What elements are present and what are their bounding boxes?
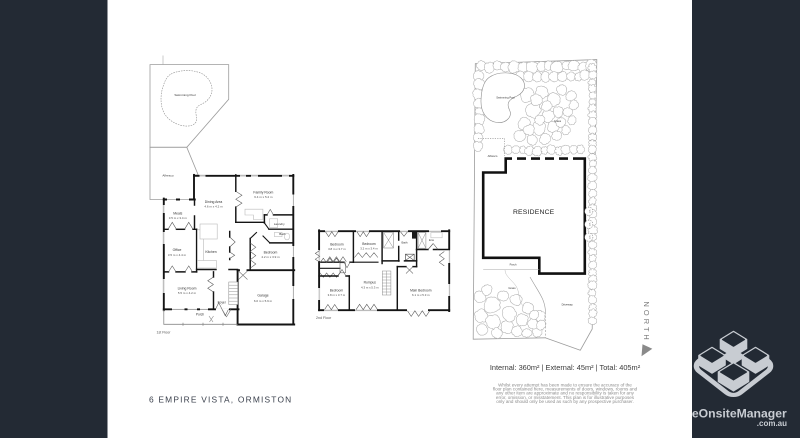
svg-text:Garage: Garage bbox=[257, 294, 268, 298]
svg-text:Bedroom: Bedroom bbox=[330, 242, 344, 246]
svg-text:Porch: Porch bbox=[196, 313, 205, 317]
svg-text:.com.au: .com.au bbox=[757, 419, 787, 428]
svg-text:5.5 m x 4.2 m: 5.5 m x 4.2 m bbox=[178, 291, 197, 295]
svg-text:Bath: Bath bbox=[402, 241, 408, 245]
svg-text:N O R T H: N O R T H bbox=[642, 302, 651, 341]
svg-text:Alfresco: Alfresco bbox=[488, 154, 498, 158]
svg-text:3.8 m x 3.7 m: 3.8 m x 3.7 m bbox=[328, 247, 346, 251]
svg-text:Grass: Grass bbox=[554, 119, 562, 123]
svg-text:Foyer: Foyer bbox=[218, 300, 227, 304]
svg-text:6.1 m x 5.3 m: 6.1 m x 5.3 m bbox=[412, 293, 430, 297]
svg-text:6.0 m x 5.9 m: 6.0 m x 5.9 m bbox=[254, 299, 273, 303]
svg-text:Main Bedroom: Main Bedroom bbox=[410, 288, 432, 292]
svg-text:Ens: Ens bbox=[429, 238, 435, 242]
svg-text:Bedroom: Bedroom bbox=[362, 242, 376, 246]
svg-text:1st Floor: 1st Floor bbox=[157, 330, 172, 334]
svg-text:3.2 m x 3.4 m: 3.2 m x 3.4 m bbox=[360, 246, 378, 250]
svg-text:only and should only be used a: only and should only be used as such by … bbox=[496, 399, 634, 404]
svg-text:Bedroom: Bedroom bbox=[264, 250, 278, 254]
svg-text:Office: Office bbox=[173, 248, 182, 252]
svg-text:Kitchen: Kitchen bbox=[205, 250, 216, 254]
svg-text:Rumpus: Rumpus bbox=[364, 281, 377, 285]
svg-text:Porch: Porch bbox=[510, 262, 517, 266]
svg-text:Family Room: Family Room bbox=[253, 190, 273, 194]
svg-text:Driveway: Driveway bbox=[562, 302, 574, 306]
svg-text:Dining Area: Dining Area bbox=[205, 200, 223, 204]
svg-text:3.5 m x 3.4 m: 3.5 m x 3.4 m bbox=[169, 216, 188, 220]
svg-text:Bath: Bath bbox=[279, 232, 286, 236]
svg-text:Swimming Pool: Swimming Pool bbox=[496, 95, 515, 99]
svg-text:Living Room: Living Room bbox=[178, 286, 197, 290]
svg-text:4.6 m x 4.2 m: 4.6 m x 4.2 m bbox=[204, 205, 223, 209]
svg-text:6 EMPIRE VISTA, ORMISTON: 6 EMPIRE VISTA, ORMISTON bbox=[149, 394, 292, 404]
svg-text:3.8 m x 3.7 m: 3.8 m x 3.7 m bbox=[328, 293, 346, 297]
svg-text:Meals: Meals bbox=[173, 211, 182, 215]
svg-text:Alfresco: Alfresco bbox=[162, 173, 173, 177]
svg-text:Bedroom: Bedroom bbox=[330, 288, 344, 292]
svg-text:4.3 m x 5.3 m: 4.3 m x 5.3 m bbox=[361, 285, 379, 289]
svg-text:Grass: Grass bbox=[508, 286, 516, 290]
svg-text:2nd Floor: 2nd Floor bbox=[316, 316, 332, 320]
svg-text:Swimming Pool: Swimming Pool bbox=[174, 93, 196, 97]
svg-text:Internal: 360m² | External: 45: Internal: 360m² | External: 45m² | Total… bbox=[490, 363, 641, 372]
svg-text:3.5 m x 4.4 m: 3.5 m x 4.4 m bbox=[168, 253, 187, 257]
svg-text:4.2 m x 3.9 m: 4.2 m x 3.9 m bbox=[261, 255, 280, 259]
svg-text:6.4 m x 5.2 m: 6.4 m x 5.2 m bbox=[254, 195, 273, 199]
svg-text:Laundry: Laundry bbox=[274, 222, 285, 226]
svg-text:RESIDENCE: RESIDENCE bbox=[513, 209, 555, 216]
